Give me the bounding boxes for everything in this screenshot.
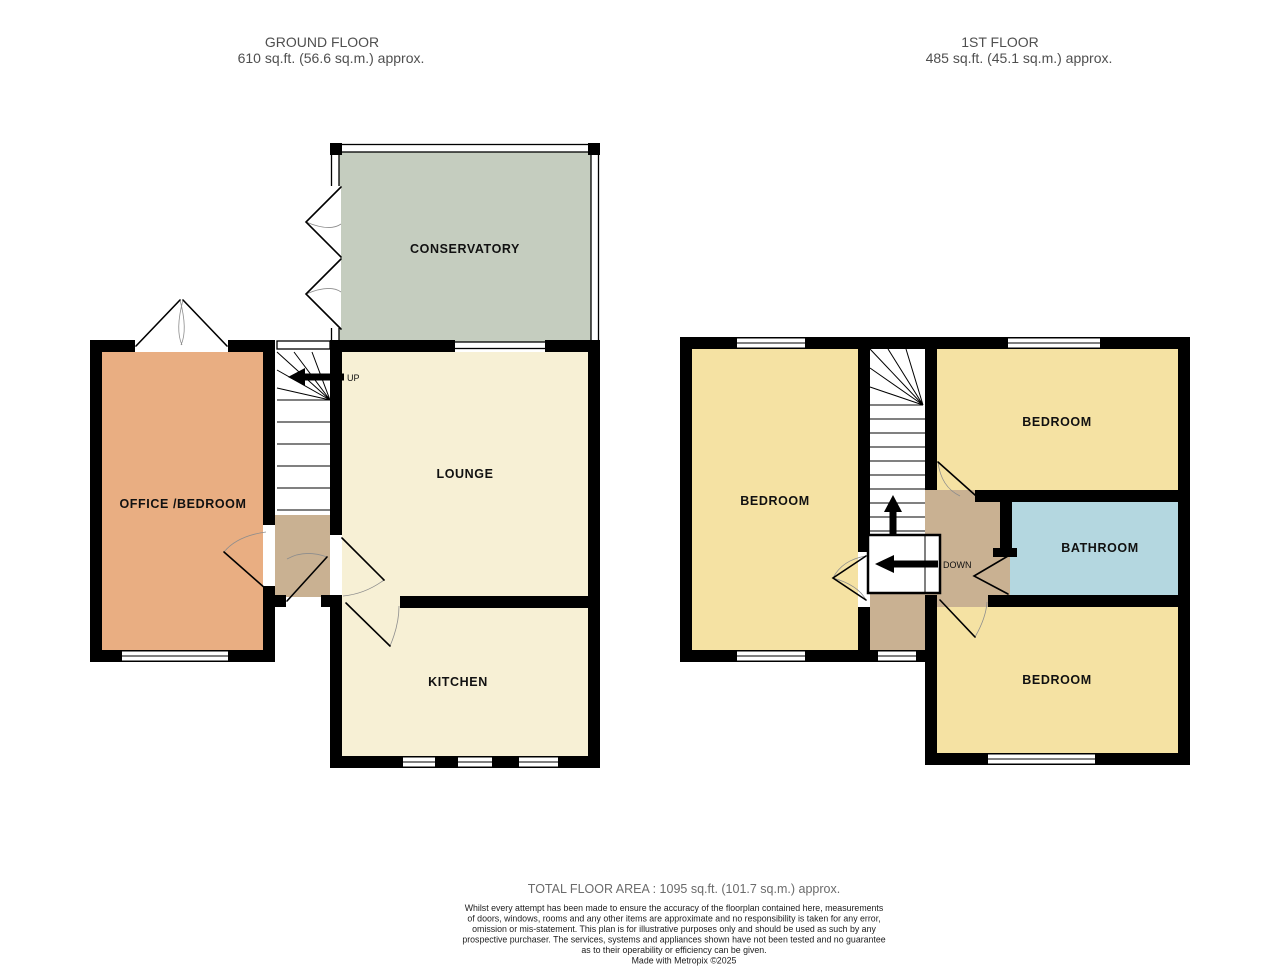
room-label-lounge: LOUNGE: [436, 467, 493, 481]
room-label-office-bedroom: OFFICE /BEDROOM: [119, 497, 246, 511]
first-floor-plan: DOWN BEDROOM BEDROOM BATHROOM BEDROOM: [680, 337, 1190, 765]
room-label-conservatory: CONSERVATORY: [410, 242, 520, 256]
disclaimer-line: of doors, windows, rooms and any other i…: [467, 914, 880, 924]
window: [988, 755, 1095, 764]
room-label-bathroom: BATHROOM: [1061, 541, 1138, 555]
stairs-down-label: DOWN: [943, 560, 972, 570]
window: [737, 652, 805, 661]
door-swing-french: [136, 300, 227, 346]
footer: TOTAL FLOOR AREA : 1095 sq.ft. (101.7 sq…: [462, 882, 885, 966]
window: [1008, 339, 1100, 348]
first-floor-header: 1ST FLOOR 485 sq.ft. (45.1 sq.m.) approx…: [926, 34, 1113, 66]
total-floor-area: TOTAL FLOOR AREA : 1095 sq.ft. (101.7 sq…: [528, 882, 840, 896]
stairs-up-label: UP: [347, 373, 360, 383]
window: [403, 758, 435, 767]
room-lounge-kitchen: [330, 340, 600, 768]
window: [878, 652, 916, 661]
window: [122, 652, 228, 661]
disclaimer-line: Whilst every attempt has been made to en…: [465, 903, 884, 913]
credit-line: Made with Metropix ©2025: [632, 956, 737, 966]
landing: [870, 593, 925, 650]
disclaimer-line: prospective purchaser. The services, sys…: [462, 935, 885, 945]
window: [519, 758, 558, 767]
floorplan-page: GROUND FLOOR 610 sq.ft. (56.6 sq.m.) app…: [0, 0, 1280, 967]
hallway: [275, 515, 330, 607]
disclaimer-line: omission or mis-statement. This plan is …: [472, 924, 876, 934]
ground-floor-area: 610 sq.ft. (56.6 sq.m.) approx.: [238, 50, 425, 66]
room-office-bedroom: [90, 300, 275, 662]
first-floor-title: 1ST FLOOR: [961, 34, 1039, 50]
disclaimer-line: as to their operability or efficiency ca…: [581, 945, 766, 955]
floorplan-canvas: GROUND FLOOR 610 sq.ft. (56.6 sq.m.) app…: [0, 0, 1280, 967]
room-label-kitchen: KITCHEN: [428, 675, 488, 689]
first-floor-area: 485 sq.ft. (45.1 sq.m.) approx.: [926, 50, 1113, 66]
ground-floor-title: GROUND FLOOR: [265, 34, 379, 50]
room-label-bedroom-left: BEDROOM: [740, 494, 809, 508]
room-label-bedroom-bottom: BEDROOM: [1022, 673, 1091, 687]
ground-floor-plan: UP CONSERVATORY LOUNGE OFFICE /BEDROOM K…: [90, 143, 600, 768]
room-label-bedroom-top: BEDROOM: [1022, 415, 1091, 429]
conservatory-doors: [306, 186, 341, 329]
window: [737, 339, 805, 348]
ground-floor-header: GROUND FLOOR 610 sq.ft. (56.6 sq.m.) app…: [238, 34, 425, 66]
window: [458, 758, 492, 767]
